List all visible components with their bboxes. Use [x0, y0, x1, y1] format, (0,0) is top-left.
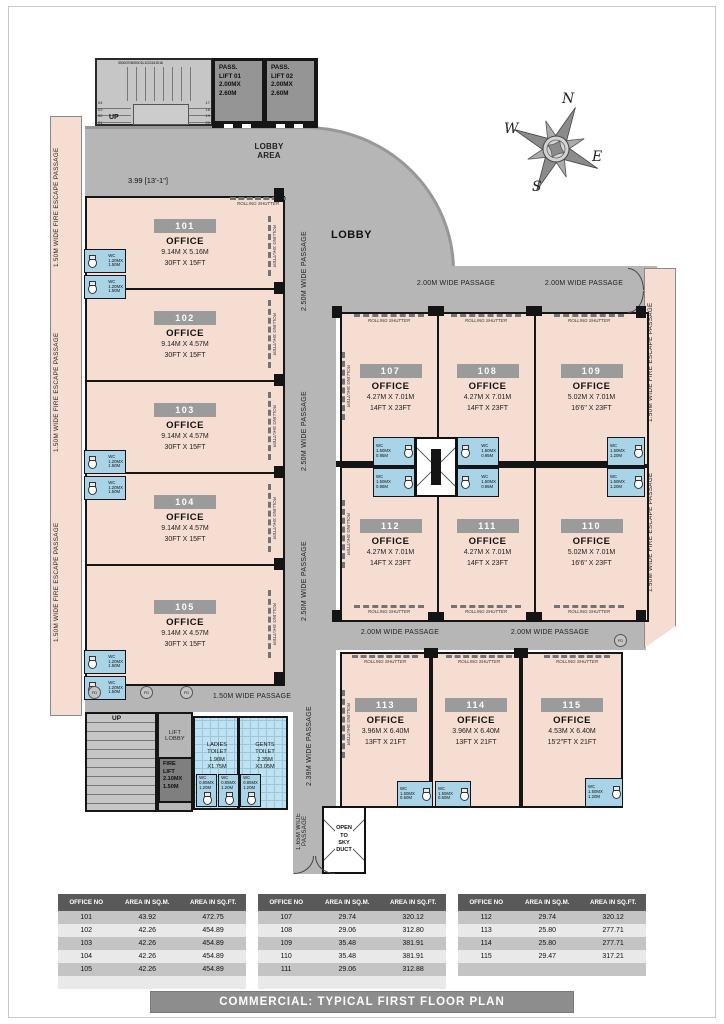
table-row: 10935.48381.91 — [258, 937, 446, 950]
table-row: 11325.80277.71 — [458, 924, 646, 937]
office-type-label: OFFICE — [367, 715, 405, 726]
passage-250-label: 2.50M WIDE PASSAGE — [301, 385, 308, 477]
compass-east-label: E — [592, 149, 602, 165]
col-office-no: OFFICE NO — [58, 899, 114, 906]
toilet-icon — [403, 445, 412, 458]
wc-label: WC 1.20MX 1.50M — [108, 481, 123, 496]
rolling-shutter-label: ROLLING SHUTTER — [342, 690, 351, 758]
toilet-icon — [611, 786, 620, 799]
toilet-icon — [403, 476, 412, 489]
table-row: 10829.06312.80 — [258, 924, 446, 937]
duct-core — [431, 449, 441, 485]
col-area-sqm: AREA IN SQ.M. — [114, 899, 180, 906]
office-type-label: OFFICE — [166, 420, 204, 431]
rolling-shutter-label: ROLLING SHUTTER — [554, 605, 624, 614]
rolling-shutter-label: ROLLING SHUTTER — [268, 392, 277, 460]
staircase-bottom — [85, 712, 157, 812]
office-number-badge: 112 — [360, 519, 422, 533]
office-dim-m: 4.27M X 7.01M — [464, 394, 511, 403]
wall-pillar — [636, 306, 646, 318]
office-dim-m: 9.14M X 4.57M — [161, 341, 208, 350]
office-dim-ft: 16'6" X 23FT — [571, 560, 611, 569]
office-dim-ft: 30FT X 15FT — [164, 352, 205, 361]
office-dim-ft: 15'2"FT X 21FT — [548, 739, 597, 748]
toilet-icon — [633, 476, 642, 489]
office-dim-ft: 30FT X 15FT — [164, 536, 205, 545]
office-dim-m: 4.27M X 7.01M — [464, 549, 511, 558]
lift-door — [242, 124, 251, 128]
table-row: 10729.74320.12 — [258, 911, 446, 924]
toilet-icon — [246, 792, 255, 805]
office-dim-m: 9.14M X 4.57M — [161, 630, 208, 639]
wc-label: WC 1.50MX 0.60M — [400, 787, 415, 802]
table-row: 10442.26454.89 — [58, 950, 246, 963]
wc-115: WC 1.50MX 1.20M — [585, 778, 623, 807]
wall-pillar — [274, 188, 284, 202]
office-dim-m: 5.02M X 7.01M — [568, 394, 615, 403]
table-row: 10542.26454.89 — [58, 963, 246, 976]
stair-right-numbers: 17 18 19 20 — [206, 100, 210, 126]
wc-label: WC 1.20MX 1.50M — [108, 254, 123, 269]
office-dim-ft: 13FT X 21FT — [455, 739, 496, 748]
passage-200-label: 2.00M WIDE PASSAGE — [494, 629, 606, 636]
office-number-badge: 111 — [457, 519, 519, 533]
wc-row3: WC 1.50MX 0.60M — [435, 781, 471, 807]
toilet-icon — [421, 788, 430, 801]
toilet-icon — [202, 792, 211, 805]
wc-stall: WC 0.85MX 1.20M — [218, 774, 239, 807]
toilet-icon — [224, 792, 233, 805]
stair-landing — [133, 104, 189, 125]
office-dim-ft: 13FT X 21FT — [365, 739, 406, 748]
rolling-shutter-label: ROLLING SHUTTER — [354, 605, 424, 614]
office-type-label: OFFICE — [166, 328, 204, 339]
wc-right: WC 1.50MX 1.20M — [607, 437, 645, 466]
toilet-icon — [87, 281, 96, 294]
toilet-icon — [87, 456, 96, 469]
table-row-empty — [58, 976, 246, 989]
wc-stall: WC 0.85MX 1.20M — [240, 774, 261, 807]
office-dim-m: 9.14M X 4.57M — [161, 525, 208, 534]
col-area-sqm: AREA IN SQ.M. — [514, 899, 580, 906]
wc-left: WC 1.20MX 1.50M — [84, 476, 126, 500]
wall-pillar — [424, 648, 438, 658]
wall-pillar — [428, 306, 444, 316]
toilet-icon — [87, 482, 96, 495]
compass-west-label: W — [504, 121, 518, 137]
office-type-label: OFFICE — [166, 512, 204, 523]
office-dim-ft: 14FT X 23FT — [467, 560, 508, 569]
wc-label: WC 1.20MX 1.50M — [108, 280, 123, 295]
fire-escape-label: 1.50M WIDE FIRE ESCAPE PASSAGE — [53, 330, 79, 455]
fire-escape-label: 1.50M WIDE FIRE ESCAPE PASSAGE — [53, 145, 79, 270]
area-table-1: OFFICE NO AREA IN SQ.M. AREA IN SQ.FT. 1… — [58, 894, 246, 989]
passage-165-label: 1.65M WIDE PASSAGE — [296, 800, 320, 862]
col-area-sqm: AREA IN SQ.M. — [314, 899, 380, 906]
table-header: OFFICE NO AREA IN SQ.M. AREA IN SQ.FT. — [258, 894, 446, 911]
office-dim-m: 9.14M X 5.16M — [161, 249, 208, 258]
toilets-block: LADIES TOILET 1.90M X1.75M GENTS TOILET … — [193, 716, 288, 810]
office-type-label: OFFICE — [573, 536, 611, 547]
office-dim-m: 3.96M X 6.40M — [362, 728, 409, 737]
wc-label: WC 1.50MX 1.20M — [610, 444, 625, 459]
table-row — [458, 963, 646, 976]
passage-200-label: 2.00M WIDE PASSAGE — [528, 280, 640, 287]
rolling-shutter-label: ROLLING SHUTTER — [451, 605, 521, 614]
table-row: 11035.48381.91 — [258, 950, 446, 963]
office-type-label: OFFICE — [469, 381, 507, 392]
wc-label: WC 1.50MX 0.95M — [376, 475, 391, 490]
wc-left: WC 1.20MX 1.50M — [84, 650, 126, 674]
rolling-shutter-label: ROLLING SHUTTER — [342, 352, 351, 420]
area-table-3: OFFICE NO AREA IN SQ.M. AREA IN SQ.FT. 1… — [458, 894, 646, 976]
wc-label: WC 1.50MX 0.60M — [438, 787, 453, 802]
col-area-sqft: AREA IN SQ.FT. — [380, 899, 446, 906]
wc-left: WC 1.20MX 1.50M — [84, 275, 126, 299]
stair-left-numbers: 04 03 02 01 — [98, 100, 102, 126]
office-number-badge: 115 — [541, 698, 603, 712]
rolling-shutter-label: ROLLING SHUTTER — [268, 484, 277, 552]
office-type-label: OFFICE — [469, 536, 507, 547]
office-type-label: OFFICE — [372, 536, 410, 547]
wall-pillar — [332, 306, 342, 318]
rolling-shutter-label: ROLLING SHUTTER — [451, 314, 521, 323]
office-dim-m: 5.02M X 7.01M — [568, 549, 615, 558]
office-dim-ft: 16'6" X 23FT — [571, 405, 611, 414]
passage-150-label: 1.50M WIDE PASSAGE — [196, 693, 308, 700]
wall-pillar — [514, 648, 528, 658]
table-row: 11129.06312.88 — [258, 963, 446, 976]
office-102: 102 OFFICE 9.14M X 4.57M 30FT X 15FT — [85, 288, 285, 384]
office-dim-m: 9.14M X 4.57M — [161, 433, 208, 442]
fire-escape-label: 1.50M WIDE FIRE ESCAPE PASSAGE — [53, 520, 79, 645]
table-row: 11529.47317.21 — [458, 950, 646, 963]
ladies-toilet-label: LADIES TOILET 1.90M X1.75M — [199, 742, 235, 771]
passage-250-label: 2.50M WIDE PASSAGE — [301, 535, 308, 627]
wc-core: WC 1.50MX 0.95M — [457, 468, 499, 497]
rolling-shutter-label: ROLLING SHUTTER — [446, 655, 512, 664]
wall-pillar — [636, 610, 646, 622]
fire-door-marker: FD — [180, 686, 193, 699]
office-number-badge: 104 — [154, 495, 216, 509]
office-dim-ft: 14FT X 23FT — [370, 405, 411, 414]
col-area-sqft: AREA IN SQ.FT. — [180, 899, 246, 906]
compass-rose: N W E S — [500, 93, 612, 205]
stair-treads — [119, 67, 191, 101]
wc-label: WC 0.85MX 1.20M — [243, 776, 258, 791]
gents-toilet-label: GENTS TOILET 2.35M X3.05M — [245, 742, 285, 771]
col-area-sqft: AREA IN SQ.FT. — [580, 899, 646, 906]
fire-door-marker: FD — [140, 686, 153, 699]
office-dim-ft: 30FT X 15FT — [164, 444, 205, 453]
toilet-icon — [460, 476, 469, 489]
office-number-badge: 103 — [154, 403, 216, 417]
rolling-shutter-label: ROLLING SHUTTER — [352, 655, 418, 664]
table-row: 10143.92472.75 — [58, 911, 246, 924]
office-type-label: OFFICE — [166, 236, 204, 247]
fire-lift: FIRE LIFT 2.10MX 1.50M — [158, 757, 193, 803]
table-row: 10242.26454.89 — [58, 924, 246, 937]
table-row: 11229.74320.12 — [458, 911, 646, 924]
office-number-badge: 114 — [445, 698, 507, 712]
up-label: UP — [112, 715, 121, 722]
wc-stall: WC 0.85MX 1.20M — [196, 774, 217, 807]
dimension-width: 3.99 [13'-1"] — [128, 176, 168, 185]
office-type-label: OFFICE — [573, 381, 611, 392]
wc-label: WC 0.85MX 1.20M — [221, 776, 236, 791]
toilet-icon — [633, 445, 642, 458]
office-type-label: OFFICE — [372, 381, 410, 392]
col-office-no: OFFICE NO — [458, 899, 514, 906]
office-dim-m: 4.27M X 7.01M — [367, 549, 414, 558]
office-number-badge: 105 — [154, 600, 216, 614]
wc-label: WC 1.20MX 1.50M — [108, 455, 123, 470]
passage-200-label: 2.00M WIDE PASSAGE — [400, 280, 512, 287]
staircase-top: 05 06 07 08 09 10 11 12 13 14 15 16 04 0… — [95, 58, 213, 126]
open-sky-duct-label: OPEN TO SKY DUCT — [335, 824, 353, 855]
wall-pillar — [526, 306, 542, 316]
pass-lift-02: PASS. LIFT 02 2.00MX 2.60M — [267, 61, 314, 121]
lift-door — [224, 124, 233, 128]
wc-core: WC 1.50MX 0.95M — [373, 437, 415, 466]
central-passage — [281, 190, 336, 712]
wc-label: WC 1.50MX 0.95M — [481, 475, 496, 490]
passage-250-label: 2.50M WIDE PASSAGE — [301, 225, 308, 317]
compass-south-label: S — [532, 179, 542, 195]
office-dim-m: 4.53M X 6.40M — [548, 728, 595, 737]
office-number-badge: 108 — [457, 364, 519, 378]
wc-label: WC 1.50MX 0.95M — [481, 444, 496, 459]
office-type-label: OFFICE — [457, 715, 495, 726]
passage-200-label: 2.00M WIDE PASSAGE — [344, 629, 456, 636]
fire-escape-label: 1.50M WIDE FIRE ESCAPE PASSAGE — [647, 470, 673, 595]
office-dim-m: 4.27M X 7.01M — [367, 394, 414, 403]
fire-door-marker: FD — [88, 686, 101, 699]
wc-core: WC 1.50MX 0.95M — [373, 468, 415, 497]
wc-label: WC 1.50MX 1.20M — [588, 785, 603, 800]
wall-pillar — [274, 282, 284, 294]
rolling-shutter-label: ROLLING SHUTTER — [268, 590, 277, 658]
office-type-label: OFFICE — [553, 715, 591, 726]
wc-label: WC 1.50MX 1.20M — [610, 475, 625, 490]
rolling-shutter-label: ROLLING SHUTTER — [268, 300, 277, 368]
office-number-badge: 113 — [355, 698, 417, 712]
wc-row3: WC 1.50MX 0.60M — [397, 781, 433, 807]
table-row: 10342.26454.89 — [58, 937, 246, 950]
office-dim-ft: 30FT X 15FT — [164, 260, 205, 269]
rolling-shutter-label: ROLLING SHUTTER — [554, 314, 624, 323]
wall-pillar — [428, 612, 444, 622]
top-right-passage — [440, 266, 657, 312]
wall-pillar — [332, 610, 342, 622]
office-type-label: OFFICE — [166, 617, 204, 628]
rolling-shutter-label: ROLLING SHUTTER — [544, 655, 610, 664]
office-number-badge: 101 — [154, 219, 216, 233]
pass-lift-01: PASS. LIFT 01 2.00MX 2.60M — [215, 61, 262, 121]
wc-label: WC 1.20MX 1.50M — [108, 655, 123, 670]
wc-label: WC 1.50MX 0.95M — [376, 444, 391, 459]
office-number-badge: 102 — [154, 311, 216, 325]
area-table-2: OFFICE NO AREA IN SQ.M. AREA IN SQ.FT. 1… — [258, 894, 446, 989]
office-dim-m: 3.96M X 6.40M — [452, 728, 499, 737]
table-row: 11425.80277.71 — [458, 937, 646, 950]
office-number-badge: 107 — [360, 364, 422, 378]
wc-left: WC 1.20MX 1.50M — [84, 450, 126, 474]
table-header: OFFICE NO AREA IN SQ.M. AREA IN SQ.FT. — [458, 894, 646, 911]
office-dim-ft: 30FT X 15FT — [164, 641, 205, 650]
stair-tread-numbers: 05 06 07 08 09 10 11 12 13 14 15 16 — [118, 60, 162, 67]
lift-door — [276, 124, 285, 128]
compass-north-label: N — [562, 91, 574, 107]
up-label: UP — [109, 114, 119, 121]
lobby-label: LOBBY — [331, 229, 372, 241]
rolling-shutter-label: ROLLING SHUTTER — [268, 216, 277, 276]
toilet-icon — [87, 255, 96, 268]
toilet-icon — [460, 445, 469, 458]
wall-pillar — [526, 612, 542, 622]
office-number-badge: 110 — [561, 519, 623, 533]
table-row-empty — [258, 976, 446, 989]
office-dim-ft: 14FT X 23FT — [467, 405, 508, 414]
rolling-shutter-label: ROLLING SHUTTER — [354, 314, 424, 323]
rolling-shutter-label: ROLLING SHUTTER — [342, 500, 351, 568]
table-header: OFFICE NO AREA IN SQ.M. AREA IN SQ.FT. — [58, 894, 246, 911]
fire-escape-label: 1.50M WIDE FIRE ESCAPE PASSAGE — [647, 300, 673, 425]
wc-right: WC 1.50MX 1.20M — [607, 468, 645, 497]
wc-left: WC 1.20MX 1.50M — [84, 249, 126, 273]
wc-label: WC 1.20MX 1.50M — [108, 681, 123, 696]
office-dim-ft: 14FT X 23FT — [370, 560, 411, 569]
wall-pillar — [274, 672, 284, 686]
wc-core: WC 1.50MX 0.95M — [457, 437, 499, 466]
wc-label: WC 0.85MX 1.20M — [199, 776, 214, 791]
lift-lobby-label: LIFT LOBBY — [159, 730, 191, 742]
lift-block: PASS. LIFT 01 2.00MX 2.60M PASS. LIFT 02… — [212, 58, 318, 128]
passage-239-label: 2.39M WIDE PASSAGE — [306, 700, 313, 792]
lobby-area-label: LOBBY AREA — [238, 142, 300, 160]
wall-pillar — [274, 374, 284, 386]
office-number-badge: 109 — [561, 364, 623, 378]
floor-plan-page: { "page": { "title": "COMMERCIAL: TYPICA… — [0, 0, 724, 1024]
toilet-icon — [459, 788, 468, 801]
plan-title: COMMERCIAL: TYPICAL FIRST FLOOR PLAN — [150, 991, 574, 1013]
wall-pillar — [274, 558, 284, 570]
wall-pillar — [274, 466, 284, 478]
col-office-no: OFFICE NO — [258, 899, 314, 906]
lift-door — [294, 124, 303, 128]
fire-door-marker: FD — [614, 634, 627, 647]
toilet-icon — [87, 656, 96, 669]
